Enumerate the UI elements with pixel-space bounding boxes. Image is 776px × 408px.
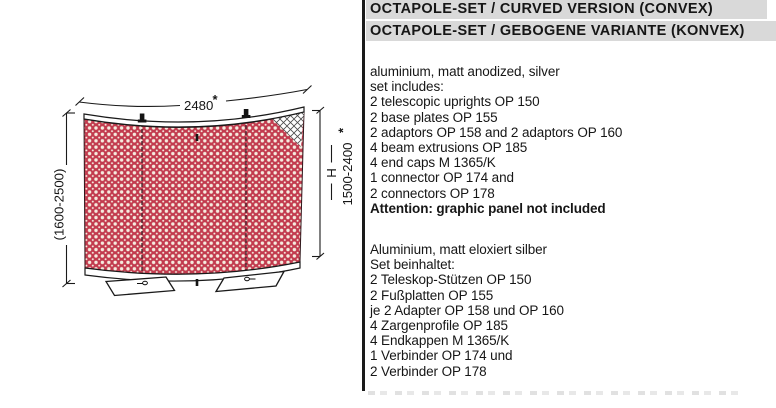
curved-panel	[84, 112, 304, 274]
base-plate-left	[106, 277, 175, 296]
octapole-technical-drawing: 2480 * (1600-2500) H 1500-2400 *	[0, 0, 362, 408]
width-label: 2480	[184, 98, 213, 113]
attention-note: Attention: graphic panel not included	[370, 201, 772, 216]
spec-line: 1 Verbinder OP 174 und	[370, 348, 772, 363]
spec-line: 4 end caps M 1365/K	[370, 155, 772, 170]
spec-line: 2 base plates OP 155	[370, 110, 772, 125]
right-height-dimension	[312, 107, 332, 260]
bottom-center-connector	[196, 279, 199, 286]
adaptor-clamp-right	[242, 109, 251, 118]
spec-line: 4 Zargenprofile OP 185	[370, 318, 772, 333]
title-german: OCTAPOLE-SET / GEBOGENE VARIANTE (KONVEX…	[366, 21, 776, 41]
spec-line: aluminium, matt anodized, silver	[370, 64, 772, 79]
spec-line: 2 adaptors OP 158 and 2 adaptors OP 160	[370, 125, 772, 140]
spec-line: 4 beam extrusions OP 185	[370, 140, 772, 155]
catalog-page: 2480 * (1600-2500) H 1500-2400 * OCTAPOL…	[0, 0, 776, 408]
right-height-label: 1500-2400	[340, 142, 355, 205]
left-height-label: (1600-2500)	[52, 169, 67, 241]
spec-line: 2 connectors OP 178	[370, 186, 772, 201]
cropped-text-remnant	[368, 391, 740, 395]
right-height-asterisk: *	[336, 127, 351, 133]
spec-line: 2 telescopic uprights OP 150	[370, 94, 772, 109]
spec-line: 2 Teleskop-Stützen OP 150	[370, 272, 772, 287]
spec-line: Aluminium, matt eloxiert silber	[370, 242, 772, 257]
spec-block-german: Aluminium, matt eloxiert silber Set bein…	[370, 242, 772, 379]
spec-line: set includes:	[370, 79, 772, 94]
height-symbol-label: H	[324, 168, 339, 178]
spec-line: 1 connector OP 174 and	[370, 170, 772, 185]
top-center-connector	[196, 134, 199, 141]
width-asterisk: *	[213, 92, 219, 107]
column-divider-rule	[362, 0, 365, 391]
spec-line: je 2 Adapter OP 158 und OP 160	[370, 303, 772, 318]
spec-line: Set beinhaltet:	[370, 257, 772, 272]
spec-block-english: aluminium, matt anodized, silver set inc…	[370, 64, 772, 216]
title-english: OCTAPOLE-SET / CURVED VERSION (CONVEX)	[366, 0, 767, 19]
spec-line: 2 Verbinder OP 178	[370, 364, 772, 379]
adaptor-clamp-left	[138, 114, 147, 123]
spec-line: 4 Endkappen M 1365/K	[370, 333, 772, 348]
spec-line: 2 Fußplatten OP 155	[370, 288, 772, 303]
